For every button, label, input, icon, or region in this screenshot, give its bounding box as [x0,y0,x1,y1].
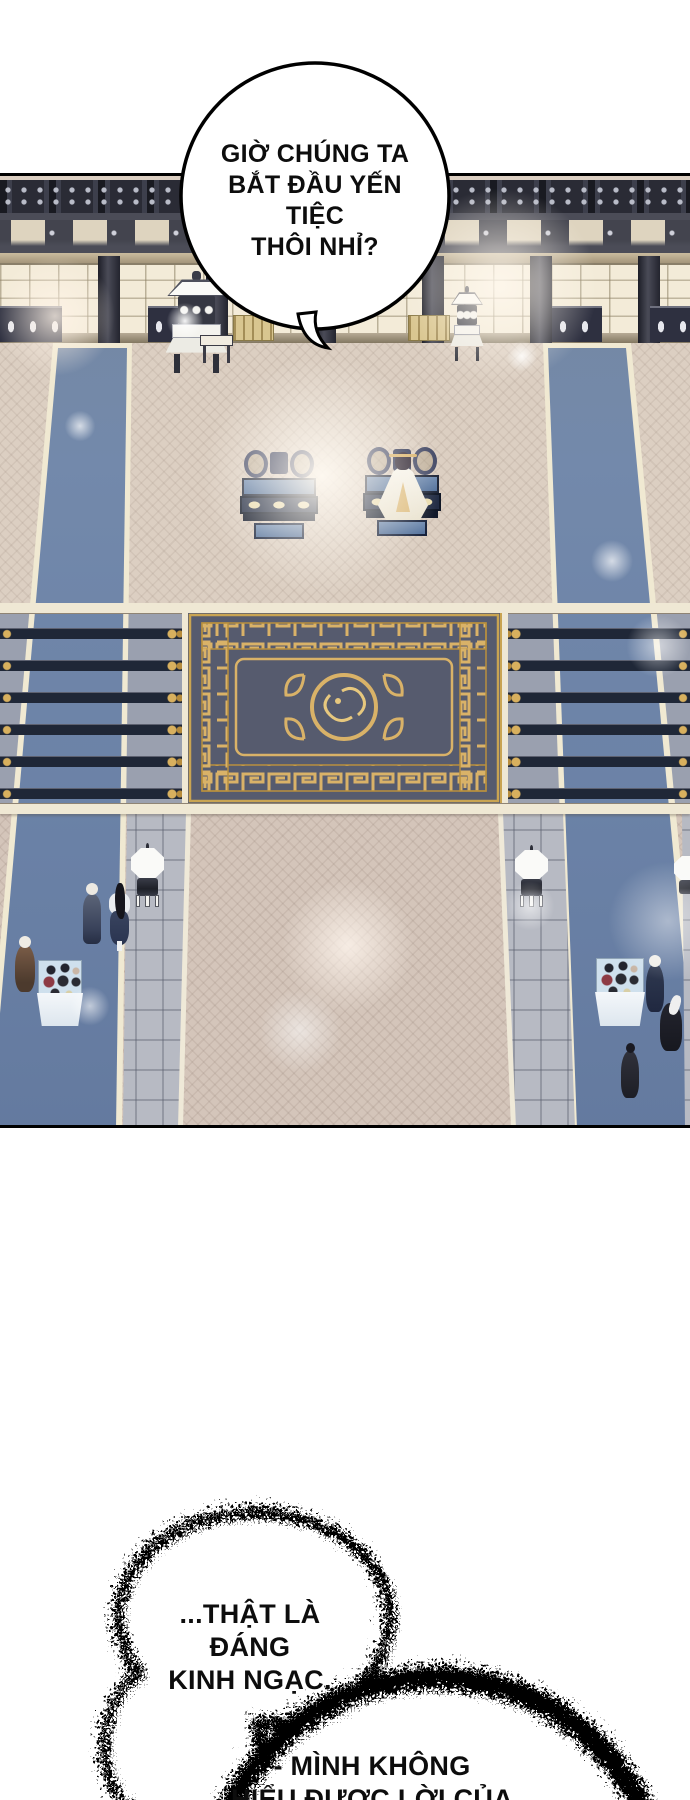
person-body [83,894,101,944]
throne-backrest [270,452,288,474]
person-hair [115,883,125,919]
step-band [0,660,188,671]
banquet-table-right [594,958,646,1026]
monologue-line-2: HIỂU ĐƯỢC LỜI CỦA NGÀI [212,1783,532,1800]
burner-top [515,850,548,880]
burner-leg [529,895,534,907]
balustrade [0,306,62,342]
step-band [500,724,690,735]
speech-bubble-text: GIỜ CHÚNG TA BẮT ĐẦU YẾN TIỆC THÔI NHỈ? [205,139,425,263]
table-cloth [594,992,646,1026]
gold-meander-panel [188,613,500,803]
throne-front-panel [240,496,318,514]
figure-hairpin [389,454,417,457]
burner-top [131,848,164,879]
step-band [500,756,690,767]
step-band [500,628,690,639]
step-band [0,628,188,639]
incense-burner-edge [674,856,690,904]
person-head [626,1043,635,1053]
step-band [500,660,690,671]
throne-footstool [377,520,427,536]
facade-pillar [98,256,120,343]
step-band [0,724,188,735]
table-cloth [36,993,84,1026]
burner-leg [145,895,150,907]
burner-body [679,880,690,894]
burner-body [521,879,542,896]
throne-left [240,450,318,542]
throne-footstool [254,523,304,539]
step-band [0,692,188,703]
step-band [500,788,690,799]
person-sash [117,941,122,951]
incense-burner-left [131,848,164,908]
burner-body [137,878,158,896]
speech-line-1: GIỜ CHÚNG TA [205,139,425,170]
burner-leg [155,895,160,907]
platform-side-trim-right [500,613,508,803]
person-man-grey-robe [81,883,103,947]
speech-line-3: THÔI NHỈ? [205,232,425,263]
platform-bottom-edge [0,803,690,814]
person-headwrap [19,936,31,948]
person-body [621,1051,639,1098]
incense-burner-right [515,850,548,908]
speech-line-2: BẮT ĐẦU YẾN TIỆC [205,170,425,232]
banquet-table-left [36,960,84,1026]
burner-leg [136,895,141,907]
person-body [15,945,35,992]
person-cap [86,883,98,895]
throne-back-scroll [290,450,314,478]
thought-bubble-text: ...THẬT LÀ ĐÁNG KINH NGẠC. [140,1598,360,1697]
seated-figure [376,448,430,520]
thought-line-2: KINH NGẠC. [140,1664,360,1697]
monologue-line-1: - MÌNH KHÔNG [212,1750,532,1783]
person-dark-robe [620,1043,640,1099]
thought-line-1: ...THẬT LÀ ĐÁNG [140,1598,360,1664]
throne-back-scroll [244,450,268,478]
balustrade [650,306,690,342]
step-band [0,756,188,767]
facade-pillar [530,256,552,343]
throne-base [243,514,315,521]
burner-top [674,856,690,881]
step-band [500,692,690,703]
balustrade [552,306,602,342]
table-top-dishes [596,958,644,993]
step-band [0,788,188,799]
inner-monologue-text: - MÌNH KHÔNG HIỂU ĐƯỢC LỜI CỦA NGÀI [212,1750,532,1800]
burner-leg [520,895,525,907]
comic-page: GIỜ CHÚNG TA BẮT ĐẦU YẾN TIỆC THÔI NHỈ? … [0,0,690,1800]
burner-leg [539,895,544,907]
person-headscarf [649,955,661,967]
person-dark-shawl [658,993,685,1053]
person-brown-robe [14,936,36,994]
person-woman-long-hair [107,883,132,949]
throne-seat [242,478,316,496]
table-top-dishes [38,960,82,994]
